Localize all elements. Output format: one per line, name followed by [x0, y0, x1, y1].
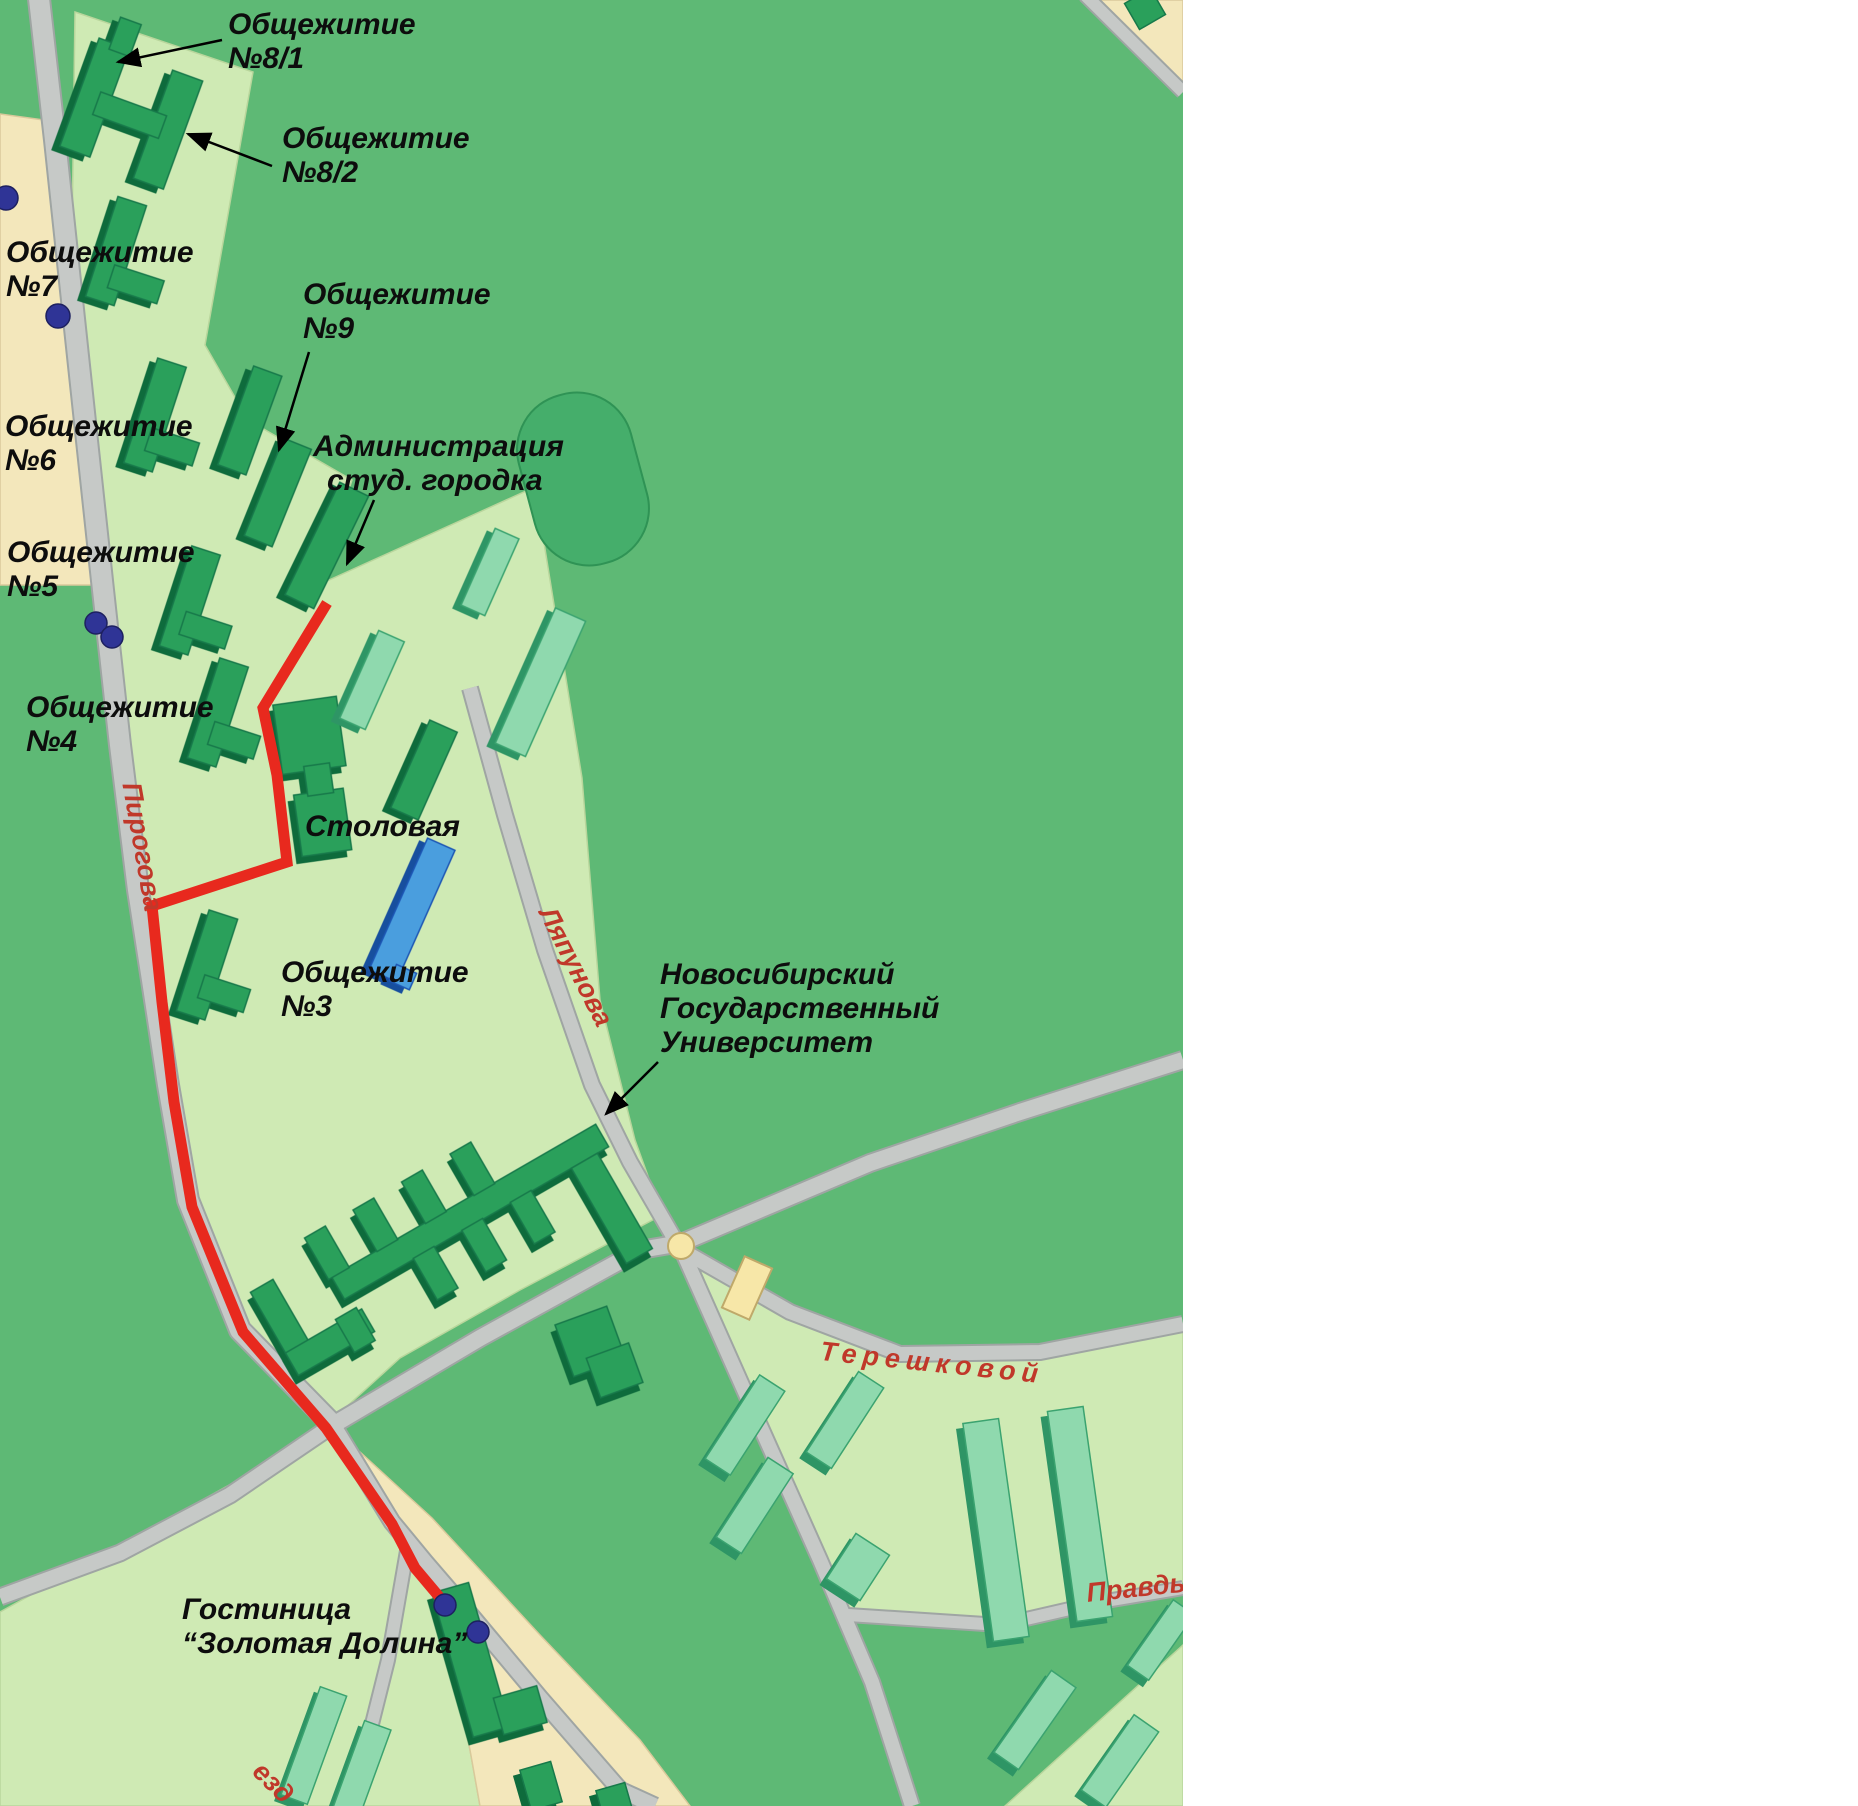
junction-circle [668, 1233, 694, 1259]
label-dorm-3: Общежитие№3 [281, 956, 469, 1024]
label-dorm-5: Общежитие№5 [7, 536, 195, 604]
bus-stop-dot [101, 626, 123, 648]
label-dorm-4: Общежитие№4 [26, 691, 214, 759]
label-nsu: НовосибирскийГосударственныйУниверситет [660, 958, 939, 1060]
label-dorm-7: Общежитие№7 [6, 236, 194, 304]
address-panel: Адреса Администрация студ. Городка (общ.… [1183, 0, 1858, 1806]
screenshot-root: Общежитие№8/1 Общежитие№8/2 Общежитие№7 … [0, 0, 1858, 1806]
label-hotel: Гостиница“Золотая Долина” [182, 1593, 467, 1661]
label-administration: Администрациястуд. городка [313, 430, 564, 498]
campus-map: Общежитие№8/1 Общежитие№8/2 Общежитие№7 … [0, 0, 1183, 1806]
bus-stop-dot [467, 1621, 489, 1643]
label-stolovaya: Столовая [305, 810, 460, 844]
bus-stop-dot [46, 304, 70, 328]
label-dorm-9: Общежитие№9 [303, 278, 491, 346]
label-dorm-8-1: Общежитие№8/1 [228, 8, 416, 76]
bus-stop-dot [0, 186, 18, 210]
label-dorm-8-2: Общежитие№8/2 [282, 122, 470, 190]
label-dorm-6: Общежитие№6 [5, 410, 193, 478]
